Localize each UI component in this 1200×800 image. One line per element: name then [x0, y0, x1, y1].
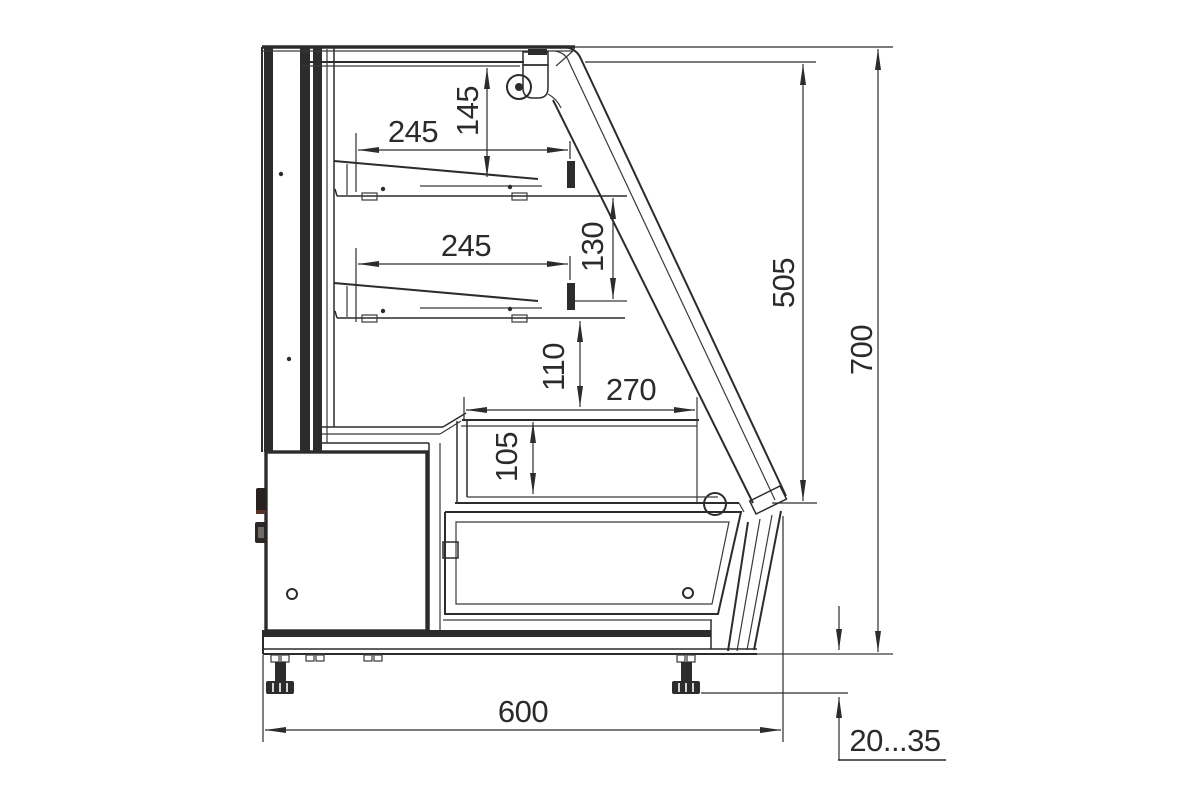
dimension-shelf-spacing: 130	[575, 198, 613, 299]
divider-column	[429, 443, 440, 631]
dim-label-well-depth: 105	[489, 432, 524, 482]
back-wall	[262, 47, 334, 452]
lower-shelf	[334, 283, 627, 322]
technical-drawing-page: 245 145 245 130 110 270 105 505 700	[0, 0, 1200, 800]
machinery-compartment	[255, 452, 427, 631]
dim-label-lower-shelf-width: 245	[441, 228, 491, 263]
dimension-well-clearance: 110	[536, 321, 580, 407]
dimension-front-glass-height: 505	[585, 62, 817, 503]
dim-label-shelf-spacing: 130	[575, 222, 610, 272]
dim-label-overall-height: 700	[844, 325, 879, 375]
display-case-section-drawing: 245 145 245 130 110 270 105 505 700	[0, 0, 1200, 800]
dimension-overall-depth: 600	[263, 516, 783, 742]
dimension-overall-height: 700	[575, 47, 893, 652]
leveling-foot-left	[266, 655, 294, 694]
dim-label-well-width: 270	[606, 372, 656, 407]
dimension-well-depth: 105	[489, 422, 533, 494]
dim-label-well-clearance: 110	[536, 343, 571, 391]
door-handle-screw	[683, 588, 693, 598]
dimension-top-shelf-front-height: 145	[450, 68, 487, 177]
dim-label-top-shelf-front-height: 145	[450, 86, 485, 136]
glass-end-cap	[750, 486, 787, 514]
compartment-door-screw	[287, 589, 297, 599]
dim-label-foot-adjustment-range: 20...35	[849, 723, 940, 758]
upper-shelf	[334, 161, 627, 200]
glass-hinge-bracket	[507, 49, 561, 108]
base-frame	[263, 620, 893, 661]
front-glass	[553, 47, 787, 515]
leveling-foot-right	[672, 655, 700, 694]
dim-label-overall-depth: 600	[498, 694, 548, 729]
dim-label-top-shelf-width: 245	[388, 114, 438, 149]
front-door-panel	[443, 512, 741, 620]
dimension-foot-adjustment-range: 20...35	[701, 606, 946, 760]
display-well	[317, 397, 744, 512]
hinge-tab-upper	[256, 488, 266, 512]
dim-label-front-glass-height: 505	[766, 258, 801, 308]
